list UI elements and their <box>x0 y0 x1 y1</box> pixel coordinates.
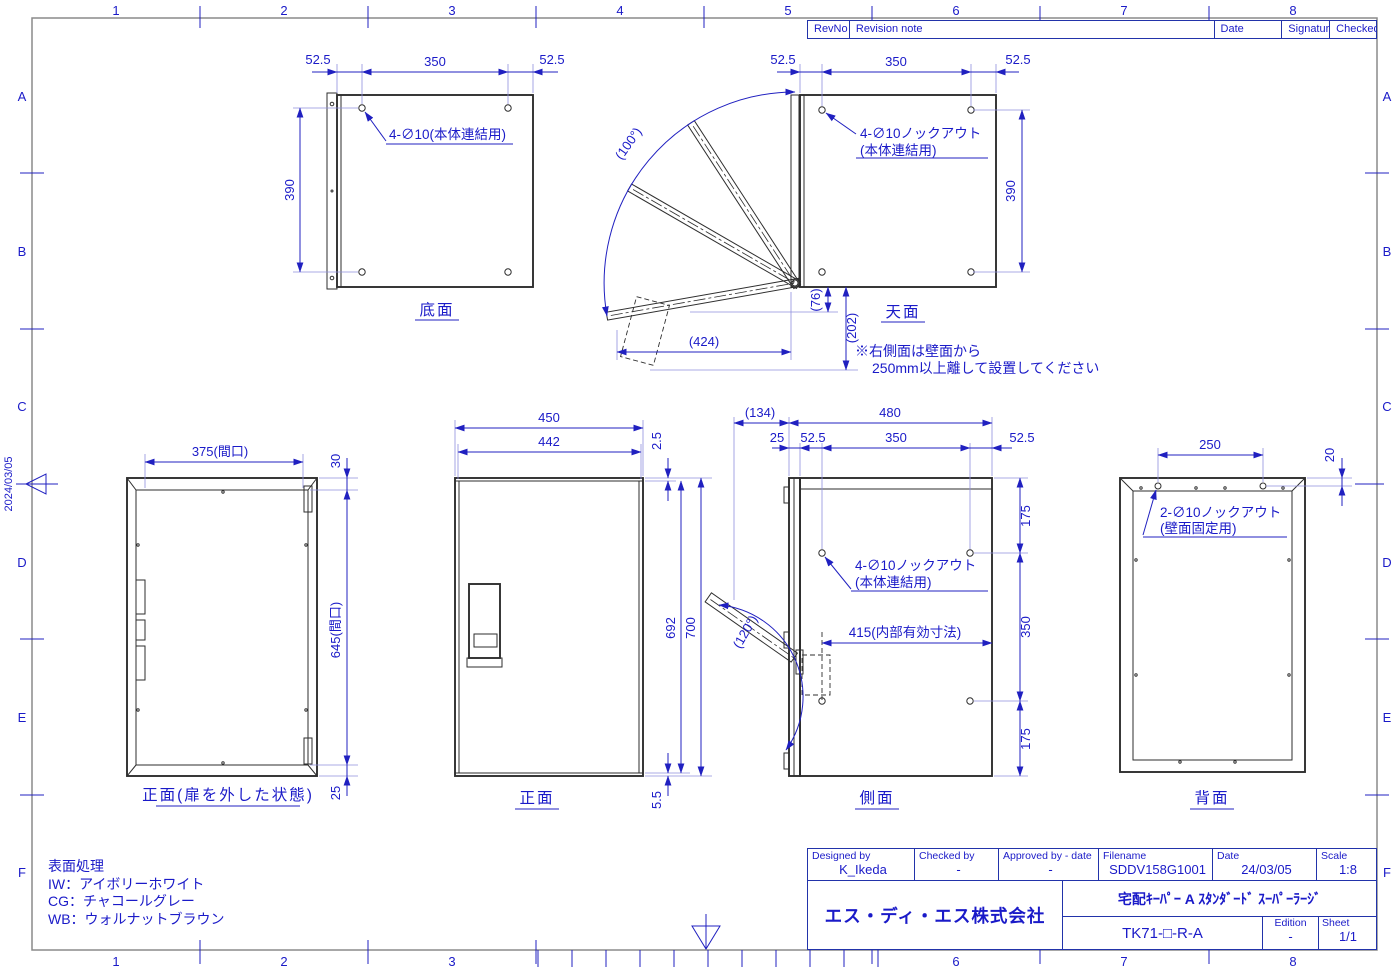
zone-col: 8 <box>1289 954 1296 969</box>
knockout-hole <box>819 269 825 275</box>
hole-callout: 2-∅10ノックアウト <box>1160 505 1281 520</box>
dim: 442 <box>538 434 560 449</box>
surface-treatment-notes: 表面処理 IW：アイボリーホワイト CG：チャコールグレー WB：ウォルナットブ… <box>48 858 225 928</box>
zone-row: B <box>1383 244 1392 259</box>
lock-window <box>474 634 497 647</box>
zone-col: 1 <box>112 3 119 18</box>
door-outline <box>455 478 643 776</box>
dim: 390 <box>282 179 297 201</box>
dim: (76) <box>808 288 823 311</box>
zone-col: 6 <box>952 3 959 18</box>
zone-col: 7 <box>1120 954 1127 969</box>
knockout-hole <box>819 550 825 556</box>
view-bottom: 52.5 350 52.5 390 4-∅10(本体連結用) 底面 <box>282 52 565 320</box>
designed-by-cell: Designed by K_Ikeda <box>808 849 915 880</box>
surface-wb: WB：ウォルナットブラウン <box>48 911 225 929</box>
hole <box>359 105 365 111</box>
surface-title: 表面処理 <box>48 858 225 876</box>
zone-row: A <box>1383 89 1392 104</box>
zone-row: A <box>18 89 27 104</box>
view-title-top: 天面 <box>885 304 920 321</box>
dim: 25 <box>770 430 784 445</box>
dim: 350 <box>1018 616 1033 638</box>
zone-row: C <box>17 399 26 414</box>
knockout-hole <box>967 550 973 556</box>
checked-by-cell: Checked by - <box>915 849 999 880</box>
zone-col: 8 <box>1289 3 1296 18</box>
drawing-sheet: 1 2 3 4 5 6 7 8 1 2 3 6 7 8 A B C D E F … <box>0 0 1400 971</box>
dim: 52.5 <box>305 52 330 67</box>
hole-callout: (壁面固定用) <box>1160 521 1237 536</box>
dim: 700 <box>683 617 698 639</box>
dim: 250 <box>1199 437 1221 452</box>
revision-note-header: Revision note <box>850 21 1215 38</box>
wall-clearance-note: ※右側面は壁面から <box>855 343 981 359</box>
hinge-detail <box>136 620 145 640</box>
zone-row: F <box>1383 865 1391 880</box>
view-side: (134) 480 25 52.5 350 52.5 175 350 175 (… <box>705 405 1035 809</box>
zone-col: 5 <box>784 3 791 18</box>
dim: 350 <box>885 54 907 69</box>
dim: 5.5 <box>649 791 664 809</box>
knockout-hole <box>1260 483 1266 489</box>
knockout-hole <box>819 107 825 113</box>
bottom-panel <box>337 95 533 287</box>
date-value: 24/03/05 <box>1217 862 1316 877</box>
view-title-back: 背面 <box>1194 789 1229 807</box>
zone-col: 6 <box>952 954 959 969</box>
filename-cell: Filename SDDV158G1001 <box>1099 849 1213 880</box>
rev-no-header: RevNo <box>808 21 850 38</box>
part-number: TK71-□-R-A <box>1063 917 1263 949</box>
dim: 175 <box>1018 728 1033 750</box>
dim: 25 <box>328 786 343 800</box>
hole <box>505 105 511 111</box>
door-closed <box>791 95 799 287</box>
knockout-hole <box>1155 483 1161 489</box>
zone-row: F <box>18 865 26 880</box>
hole-callout: 4-∅10ノックアウト <box>855 558 976 573</box>
revision-table: RevNo Revision note Date Signature Check… <box>807 20 1377 39</box>
dim-angle: (100°) <box>612 125 645 163</box>
zone-col: 3 <box>448 3 455 18</box>
dim: (134) <box>745 405 775 420</box>
approved-by-value: - <box>1003 862 1098 877</box>
dim: 692 <box>663 617 678 639</box>
scale-cell: Scale 1:8 <box>1317 849 1375 880</box>
date-stamp: 2024/03/05 <box>3 456 15 511</box>
surface-cg: CG：チャコールグレー <box>48 893 225 911</box>
view-back: 250 20 2-∅10ノックアウト (壁面固定用) 背面 <box>1120 437 1352 809</box>
wall-clearance-note: 250mm以上離して設置してください <box>872 360 1099 376</box>
zone-row: E <box>18 710 27 725</box>
drawing-canvas: 1 2 3 4 5 6 7 8 1 2 3 6 7 8 A B C D E F … <box>0 0 1400 971</box>
sheet-cell: Sheet 1/1 <box>1319 917 1374 949</box>
view-title-bottom: 底面 <box>419 301 454 319</box>
dim: 480 <box>879 405 901 420</box>
dim: 52.5 <box>1005 52 1030 67</box>
hinge-detail <box>136 646 145 680</box>
dim: 175 <box>1018 505 1033 527</box>
dim: 390 <box>1003 180 1018 202</box>
dim: 645(間口) <box>328 602 343 658</box>
zone-row: B <box>18 244 27 259</box>
zone-row: D <box>17 555 26 570</box>
sheet-frame: 1 2 3 4 5 6 7 8 1 2 3 6 7 8 A B C D E F … <box>3 3 1392 969</box>
dim: (202) <box>844 313 859 343</box>
view-front-open: 375(間口) 30 645(間口) 25 正面(扉を外した状態) <box>127 444 358 806</box>
top-panel <box>800 95 996 287</box>
edition-cell: Edition - <box>1263 917 1319 949</box>
designed-by-value: K_Ikeda <box>812 862 914 877</box>
hinge-strip <box>327 93 337 289</box>
sheet-value: 1/1 <box>1322 929 1374 944</box>
view-title-front-open: 正面(扉を外した状態) <box>142 786 314 804</box>
knockout-hole <box>967 698 973 704</box>
dim: 415(内部有効寸法) <box>849 625 962 640</box>
dim: 450 <box>538 410 560 425</box>
view-title-front: 正面 <box>519 790 554 807</box>
zone-col: 2 <box>280 954 287 969</box>
rev-signature-header: Signature <box>1282 21 1330 38</box>
dim: 52.5 <box>770 52 795 67</box>
dim: 375(間口) <box>192 444 248 459</box>
hole <box>505 269 511 275</box>
dim: 350 <box>885 430 907 445</box>
filename-value: SDDV158G1001 <box>1103 862 1212 877</box>
date-cell: Date 24/03/05 <box>1213 849 1317 880</box>
hole-callout: (本体連結用) <box>855 575 932 590</box>
lock-flap <box>467 658 502 667</box>
title-block-row1: Designed by K_Ikeda Checked by - Approve… <box>808 849 1376 881</box>
dim: 52.5 <box>1009 430 1034 445</box>
dim: 2.5 <box>649 432 664 450</box>
dim-angle: (120°) <box>730 613 761 651</box>
zone-row: E <box>1383 710 1392 725</box>
zone-col: 1 <box>112 954 119 969</box>
zone-col: 3 <box>448 954 455 969</box>
approved-by-cell: Approved by - date - <box>999 849 1099 880</box>
title-block: Designed by K_Ikeda Checked by - Approve… <box>807 848 1377 950</box>
body-outline <box>127 478 317 776</box>
surface-iw: IW：アイボリーホワイト <box>48 876 225 894</box>
hole <box>359 269 365 275</box>
hole-callout: 4-∅10(本体連結用) <box>389 127 506 142</box>
zone-row: C <box>1382 399 1391 414</box>
rev-date-header: Date <box>1215 21 1283 38</box>
dim: 30 <box>328 454 343 468</box>
checked-by-value: - <box>919 862 998 877</box>
view-front: 450 442 2.5 692 700 5.5 正面 <box>455 410 712 809</box>
zone-row: D <box>1382 555 1391 570</box>
scale-value: 1:8 <box>1321 862 1375 877</box>
hole-callout: 4-∅10ノックアウト <box>860 126 981 141</box>
company-name: エス・ディ・エス株式会社 <box>808 881 1063 949</box>
zone-col: 4 <box>616 3 623 18</box>
dim: (424) <box>689 334 719 349</box>
zone-col: 2 <box>280 3 287 18</box>
dim: 350 <box>424 54 446 69</box>
dim: 52.5 <box>800 430 825 445</box>
hinge-detail <box>136 580 145 614</box>
product-title: 宅配ｷｰﾊﾟｰ A ｽﾀﾝﾀﾞｰﾄﾞ ｽｰﾊﾟｰﾗｰｼﾞ <box>1063 881 1376 917</box>
dim: 52.5 <box>539 52 564 67</box>
zone-col: 7 <box>1120 3 1127 18</box>
hole-callout: (本体連結用) <box>860 143 937 158</box>
view-title-side: 側面 <box>859 789 894 807</box>
edition-value: - <box>1263 929 1318 944</box>
latch-hidden <box>802 655 830 695</box>
rev-checked-header: Checked <box>1330 21 1376 38</box>
view-top: 52.5 350 52.5 390 (100°) (76) (202) (424… <box>604 52 1099 376</box>
dim: 20 <box>1322 448 1337 462</box>
